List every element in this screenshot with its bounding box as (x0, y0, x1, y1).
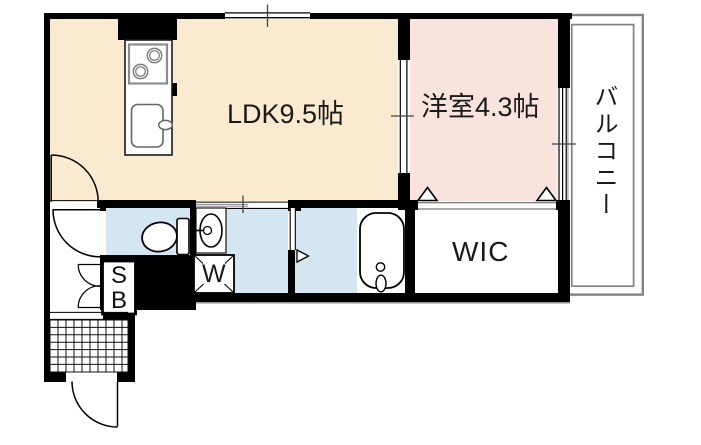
kitchen-counter (125, 40, 172, 155)
kitchen-faucet-icon (159, 120, 173, 129)
shoe-box-label-s: S (103, 263, 135, 288)
room-label-ldk: LDK9.5帖 (227, 101, 344, 128)
bathroom-floor (295, 208, 357, 293)
floorplan-canvas: LDK9.5帖 洋室4.3帖 バルコニー WIC W S B (0, 0, 701, 445)
shoe-box-label: S B (103, 263, 135, 313)
room-label-wic: WIC (452, 238, 509, 266)
toilet-door-arc (53, 210, 101, 257)
stove-icon (129, 45, 167, 84)
entrance-door-arc (72, 382, 118, 428)
genkan-tile-grid (50, 320, 128, 372)
washbasin-icon (196, 208, 226, 253)
room-label-balcony: バルコニー (591, 84, 615, 219)
bathtub-icon (360, 213, 404, 292)
floorplan-drawing (0, 0, 701, 445)
shoe-box-label-b: B (103, 288, 135, 313)
washer-pan-label: W (202, 262, 226, 287)
kitchen-duct (118, 13, 177, 40)
shoebox-double-door-arcs (78, 265, 100, 308)
ldk-floor (50, 19, 398, 201)
room-label-bedroom: 洋室4.3帖 (421, 94, 540, 121)
